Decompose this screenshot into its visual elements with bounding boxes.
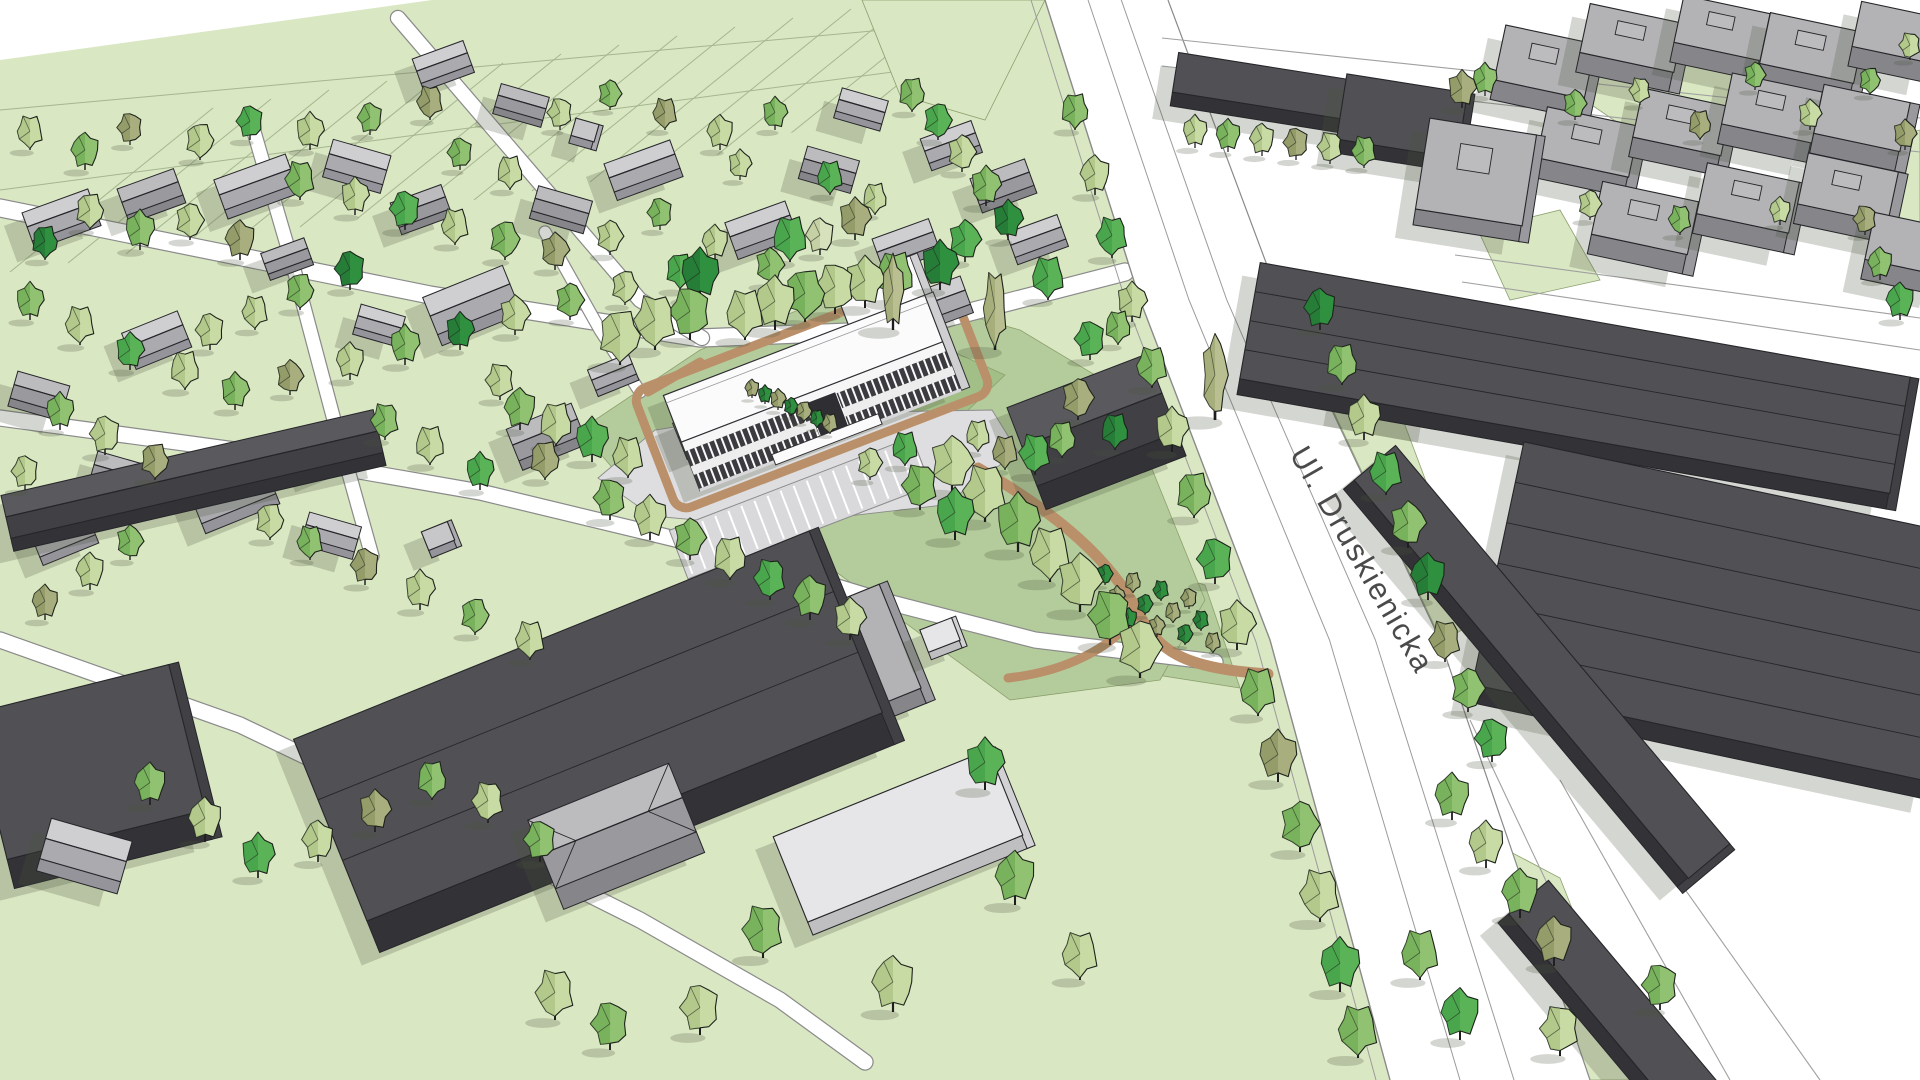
scene-layer	[0, 0, 1920, 1080]
site-plan-rendering: Ul. Druskienicka	[0, 0, 1920, 1080]
aerial-rendering-canvas: Ul. Druskienicka	[0, 0, 1920, 1080]
